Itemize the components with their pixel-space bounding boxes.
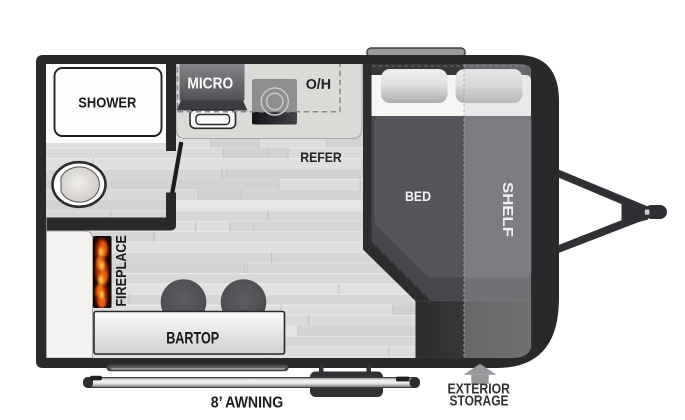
svg-text:STORAGE: STORAGE [450,394,509,410]
svg-text:O/H: O/H [306,77,331,93]
svg-text:BARTOP: BARTOP [166,330,219,348]
svg-text:BED: BED [405,189,431,205]
svg-text:SHOWER: SHOWER [78,95,136,111]
svg-text:FIREPLACE: FIREPLACE [113,235,130,307]
svg-text:8’ AWNING: 8’ AWNING [211,395,284,412]
svg-text:MICRO: MICRO [187,76,233,93]
svg-text:SHELF: SHELF [499,182,515,237]
svg-text:REFER: REFER [300,149,342,165]
